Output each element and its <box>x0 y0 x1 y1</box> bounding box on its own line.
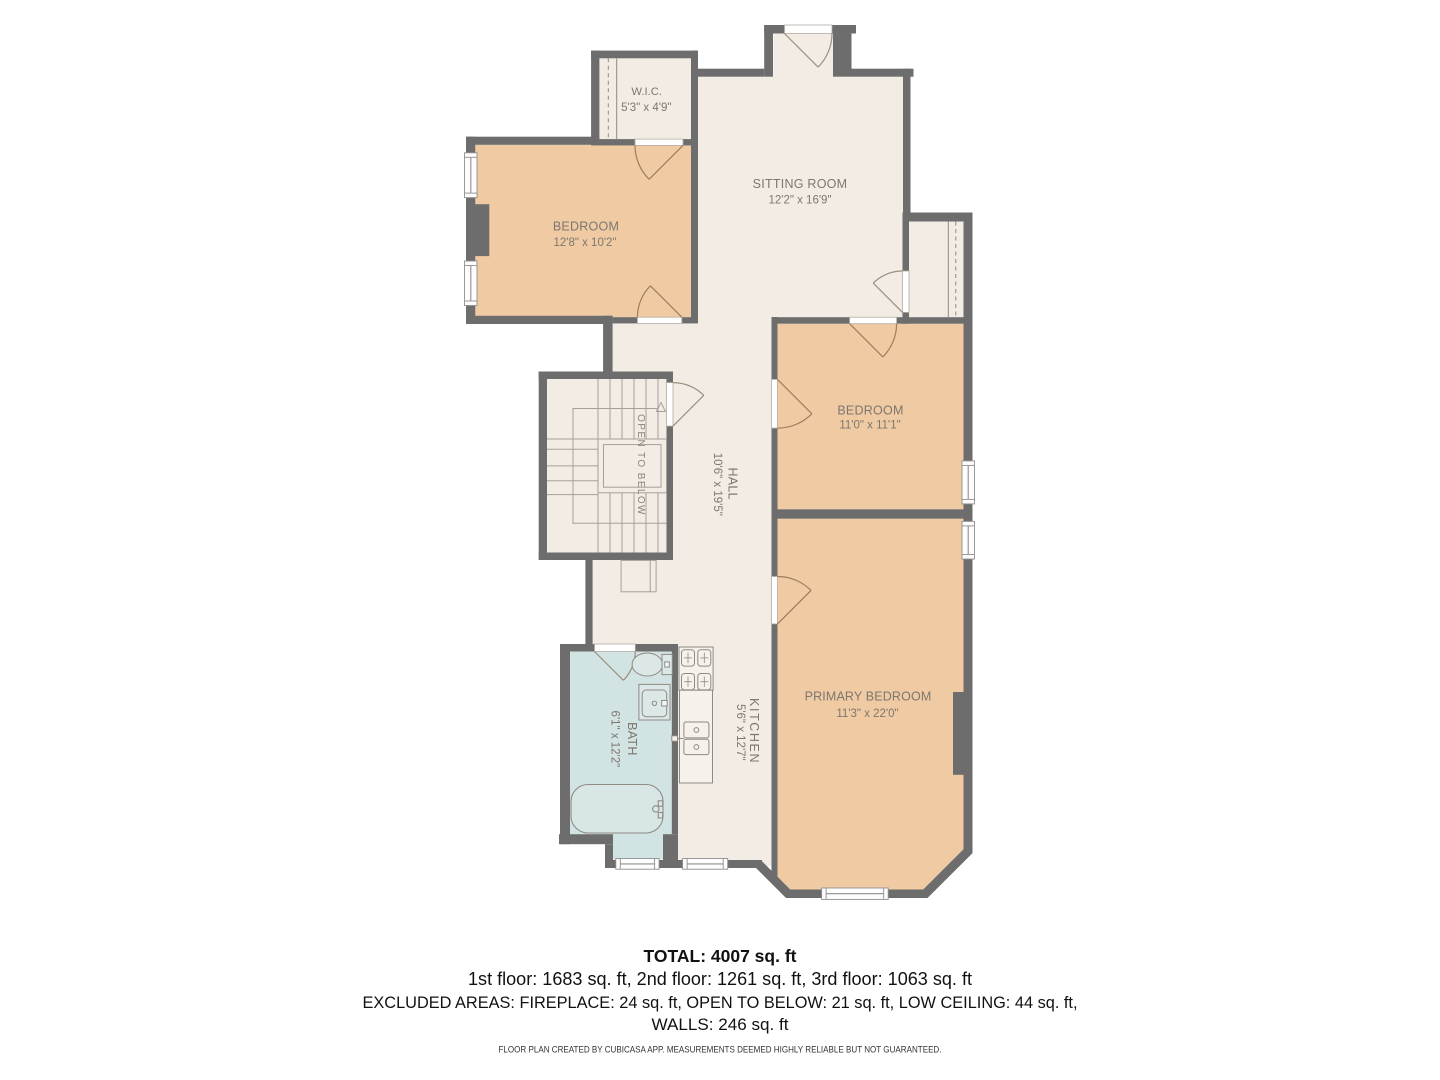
svg-text:W.I.C.: W.I.C. <box>631 86 662 98</box>
svg-text:BEDROOM: BEDROOM <box>553 219 619 233</box>
svg-text:5'6" x 12'7": 5'6" x 12'7" <box>734 704 746 761</box>
svg-text:12'2" x 16'9": 12'2" x 16'9" <box>768 195 831 207</box>
svg-text:TOTAL: 4007 sq. ft: TOTAL: 4007 sq. ft <box>644 946 797 966</box>
svg-text:HALL: HALL <box>725 467 739 499</box>
svg-text:BEDROOM: BEDROOM <box>837 403 903 417</box>
svg-text:EXCLUDED AREAS: FIREPLACE: 24: EXCLUDED AREAS: FIREPLACE: 24 sq. ft, OP… <box>363 993 1078 1012</box>
svg-text:WALLS: 246 sq. ft: WALLS: 246 sq. ft <box>652 1015 789 1034</box>
svg-text:11'0" x 11'1": 11'0" x 11'1" <box>839 420 900 432</box>
svg-text:10'6" x 19'5": 10'6" x 19'5" <box>711 453 723 516</box>
svg-text:OPEN TO BELOW: OPEN TO BELOW <box>635 414 646 516</box>
svg-text:PRIMARY BEDROOM: PRIMARY BEDROOM <box>805 689 932 703</box>
svg-text:KITCHEN: KITCHEN <box>747 698 761 764</box>
svg-text:5'3" x 4'9": 5'3" x 4'9" <box>621 102 671 114</box>
svg-text:12'8" x 10'2": 12'8" x 10'2" <box>553 237 616 249</box>
svg-text:6'1" x 12'2": 6'1" x 12'2" <box>609 711 621 768</box>
svg-text:11'3" x 22'0": 11'3" x 22'0" <box>836 708 898 720</box>
svg-text:FLOOR PLAN CREATED BY CUBICASA: FLOOR PLAN CREATED BY CUBICASA APP. MEAS… <box>499 1044 942 1055</box>
svg-text:BATH: BATH <box>625 722 639 755</box>
svg-text:1st floor: 1683 sq. ft, 2nd fl: 1st floor: 1683 sq. ft, 2nd floor: 1261 … <box>468 969 972 989</box>
svg-text:SITTING ROOM: SITTING ROOM <box>753 177 848 191</box>
